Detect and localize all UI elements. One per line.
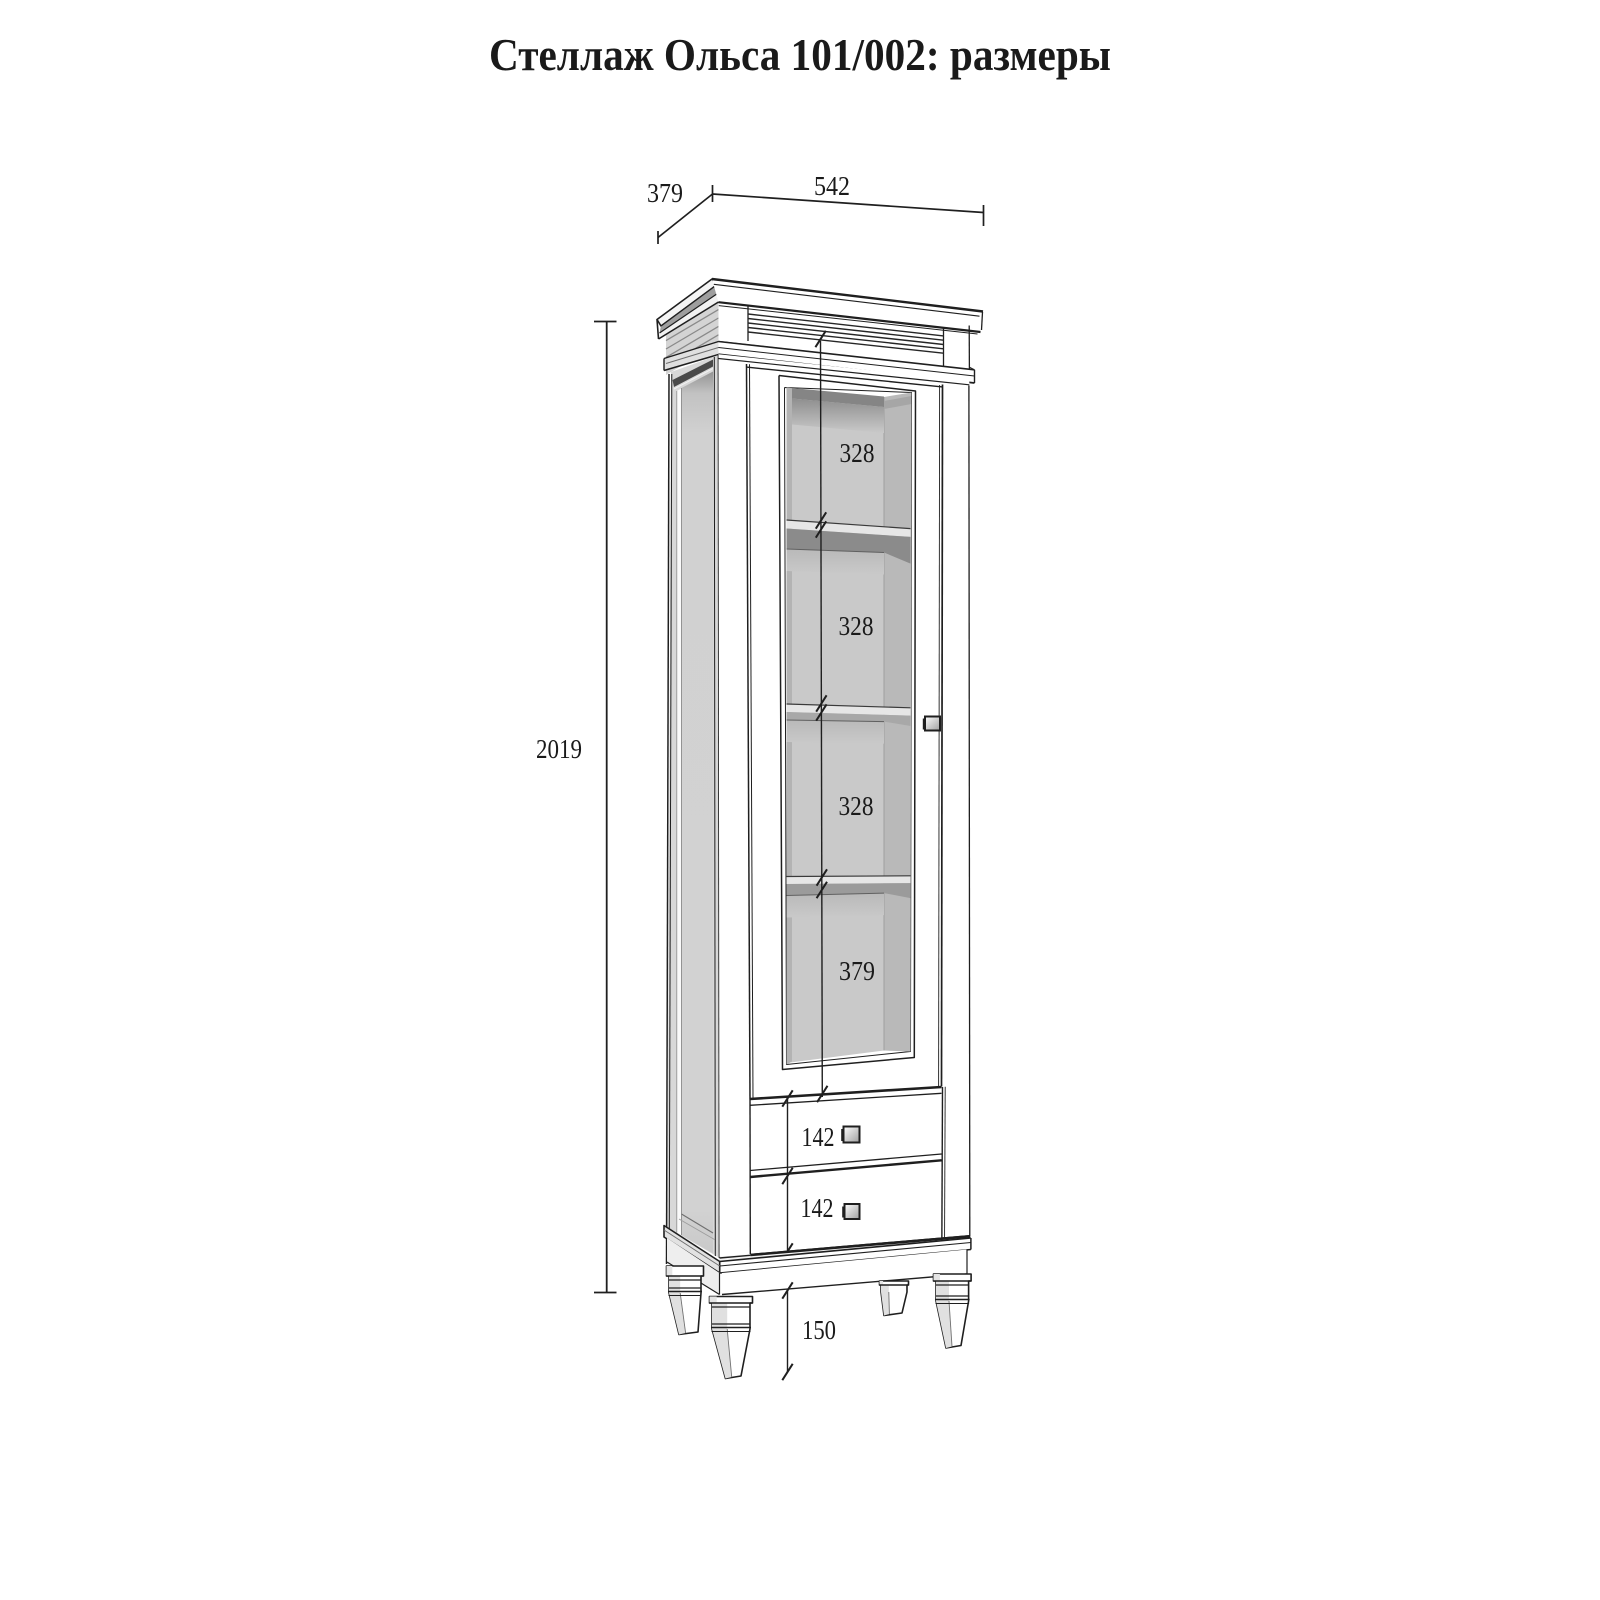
svg-text:150: 150 xyxy=(802,1315,836,1345)
svg-text:142: 142 xyxy=(801,1193,834,1223)
svg-text:542: 542 xyxy=(814,171,850,201)
svg-text:328: 328 xyxy=(839,611,874,641)
svg-text:328: 328 xyxy=(839,791,874,821)
svg-text:2019: 2019 xyxy=(536,734,582,764)
svg-text:379: 379 xyxy=(647,178,683,208)
svg-text:328: 328 xyxy=(840,438,875,468)
svg-text:379: 379 xyxy=(839,956,875,986)
svg-text:142: 142 xyxy=(802,1122,835,1152)
svg-text:Стеллаж Ольса 101/002: размеры: Стеллаж Ольса 101/002: размеры xyxy=(489,29,1111,80)
